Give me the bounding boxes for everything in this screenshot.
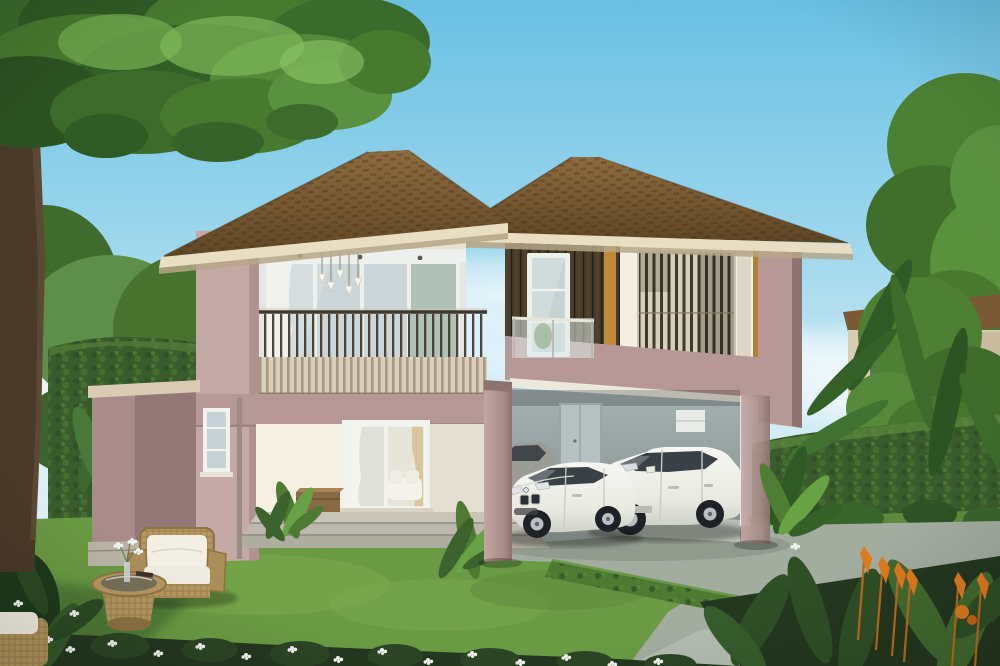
corner-sofa <box>0 612 48 666</box>
side-window <box>200 408 233 477</box>
right-corner-wall-shade <box>792 251 802 428</box>
door-handle <box>573 439 576 442</box>
carport-column-left <box>484 386 512 562</box>
balcony-railing <box>258 309 487 395</box>
juliet-balustrade <box>512 318 594 359</box>
rendering-canvas <box>0 0 1000 666</box>
suv-mirror <box>646 466 655 473</box>
scene-svg <box>0 0 1000 666</box>
terrace-sliding-door <box>338 420 434 514</box>
downspout <box>237 397 242 559</box>
back-cushion <box>147 535 207 569</box>
railing-bars <box>258 314 487 357</box>
